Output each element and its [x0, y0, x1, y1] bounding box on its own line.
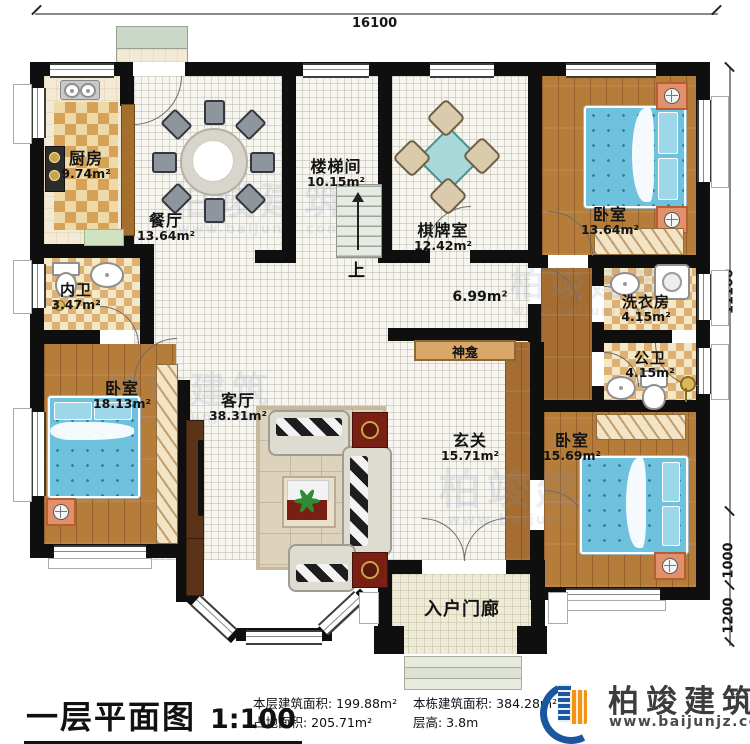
stat-floor-area: 本层建筑面积: 199.88m²	[253, 694, 397, 713]
room-label-inner-bath: 内卫3.47m²	[28, 282, 124, 312]
porch-step	[404, 678, 522, 690]
stat-total-area: 本栋建筑面积: 384.28m²	[413, 694, 557, 713]
window-sill	[48, 558, 152, 569]
window	[697, 348, 712, 394]
room-label-bedroom-br: 卧室15.69m²	[524, 432, 620, 463]
bed	[580, 456, 688, 554]
bed	[48, 396, 140, 498]
window-sill	[711, 96, 729, 188]
bed-sheet	[50, 422, 134, 440]
stairs-arrow	[357, 200, 359, 250]
end-table-lamp	[361, 421, 379, 439]
bed	[584, 106, 686, 208]
window-sill	[711, 270, 729, 326]
window-sill	[13, 84, 32, 144]
back-porch-step	[116, 26, 188, 50]
window	[31, 88, 46, 138]
sofa-pillows	[350, 456, 368, 546]
bed-sheet	[626, 458, 646, 548]
sofa-loveseat	[288, 544, 356, 592]
kitchen-sink-bowl	[80, 83, 96, 98]
nightstand	[46, 498, 76, 526]
window	[50, 63, 114, 78]
floor-plan: 16100 11100 1000 1200 柏竣建筑 www.baijunjz.…	[0, 0, 750, 744]
room-label-public-bath: 公卫4.15m²	[602, 350, 698, 380]
stats-column-2: 本栋建筑面积: 384.28m² 层高: 3.8m	[413, 694, 557, 733]
room-label-bedroom-left: 卧室18.13m²	[74, 380, 170, 411]
room-label-foyer: 玄关15.71m²	[422, 432, 518, 463]
room-label-chess: 棋牌室12.42m²	[395, 222, 491, 253]
shower-arm	[685, 388, 687, 402]
wall	[541, 255, 548, 268]
wall	[592, 330, 672, 343]
stat-footprint: 占地面积: 205.71m²	[253, 713, 397, 732]
porch-label: 入户门廊	[414, 600, 510, 619]
kitchen-sink-bowl	[64, 83, 80, 98]
dining-table-top	[192, 140, 234, 182]
bay-window-bottom	[246, 630, 322, 645]
tv	[198, 440, 204, 516]
window	[697, 100, 712, 182]
stats-column-1: 本层建筑面积: 199.88m² 占地面积: 205.71m²	[253, 694, 397, 733]
room-label-dining: 餐厅13.64m²	[118, 212, 214, 243]
window-sill	[359, 592, 379, 624]
bay-window-right	[318, 591, 364, 635]
corridor-area-label: 6.99m²	[432, 290, 528, 305]
porch-pillar	[374, 626, 404, 654]
stairs-up-label: 上	[348, 256, 365, 281]
dimension-right-lower: 1200	[722, 586, 737, 646]
wall	[592, 386, 604, 400]
bed-pillow	[658, 112, 678, 154]
room-label-living: 客厅38.31m²	[190, 392, 286, 423]
room-label-laundry: 洗衣房4.15m²	[598, 294, 694, 324]
wall	[530, 530, 544, 600]
wall	[255, 250, 296, 263]
brand-url: www.baijunjz.com	[609, 714, 750, 730]
room-label-stairwell: 楼梯间10.15m²	[288, 158, 384, 189]
window	[697, 274, 712, 320]
window-sill	[562, 600, 666, 611]
nightstand	[654, 552, 686, 580]
porch-pillar	[517, 626, 547, 654]
room-label-bedroom-tr: 卧室13.64m²	[562, 206, 658, 237]
wall	[592, 268, 604, 286]
stat-floor-height: 层高: 3.8m	[413, 713, 557, 732]
wall	[530, 400, 710, 412]
room-label-kitchen: 厨房9.74m²	[38, 150, 134, 181]
window	[566, 63, 656, 78]
washing-machine-drum	[662, 272, 682, 292]
dimension-right-mid: 1000	[722, 531, 737, 591]
bay-window-left	[191, 595, 237, 639]
stairs-arrow-head	[352, 192, 364, 202]
window	[31, 412, 46, 496]
window	[430, 63, 494, 78]
dimension-top-value: 16100	[352, 16, 397, 31]
wall	[528, 255, 541, 268]
wall	[528, 62, 542, 255]
wall	[120, 76, 134, 106]
brand-logo-icon	[538, 676, 602, 738]
wall	[30, 244, 154, 258]
back-door-opening	[133, 62, 185, 76]
window-sill	[13, 408, 32, 502]
bed-pillow	[662, 506, 680, 546]
nightstand	[656, 82, 688, 110]
bed-sheet	[632, 108, 654, 202]
dining-chair	[250, 152, 275, 173]
shrine-label: 神龛	[452, 346, 478, 361]
window	[303, 63, 369, 78]
window-sill	[711, 344, 729, 400]
sofa-pillows	[296, 564, 348, 582]
shrine: 神龛	[414, 340, 516, 361]
plan-title: 一层平面图	[26, 698, 196, 736]
dimension-line-top	[35, 13, 718, 15]
window-sill	[548, 592, 568, 624]
toilet-bowl	[642, 384, 666, 410]
dining-chair	[152, 152, 177, 173]
dining-chair	[204, 100, 225, 125]
wall	[30, 330, 100, 344]
wall	[588, 255, 710, 268]
bed-pillow	[658, 158, 678, 200]
bed-pillow	[662, 462, 680, 502]
tv-wall-lower	[186, 538, 204, 596]
end-table-lamp	[361, 561, 379, 579]
sofa-long	[342, 446, 392, 556]
logo-building-orange	[570, 690, 587, 724]
coffee-table	[282, 476, 336, 528]
wall	[140, 258, 154, 344]
